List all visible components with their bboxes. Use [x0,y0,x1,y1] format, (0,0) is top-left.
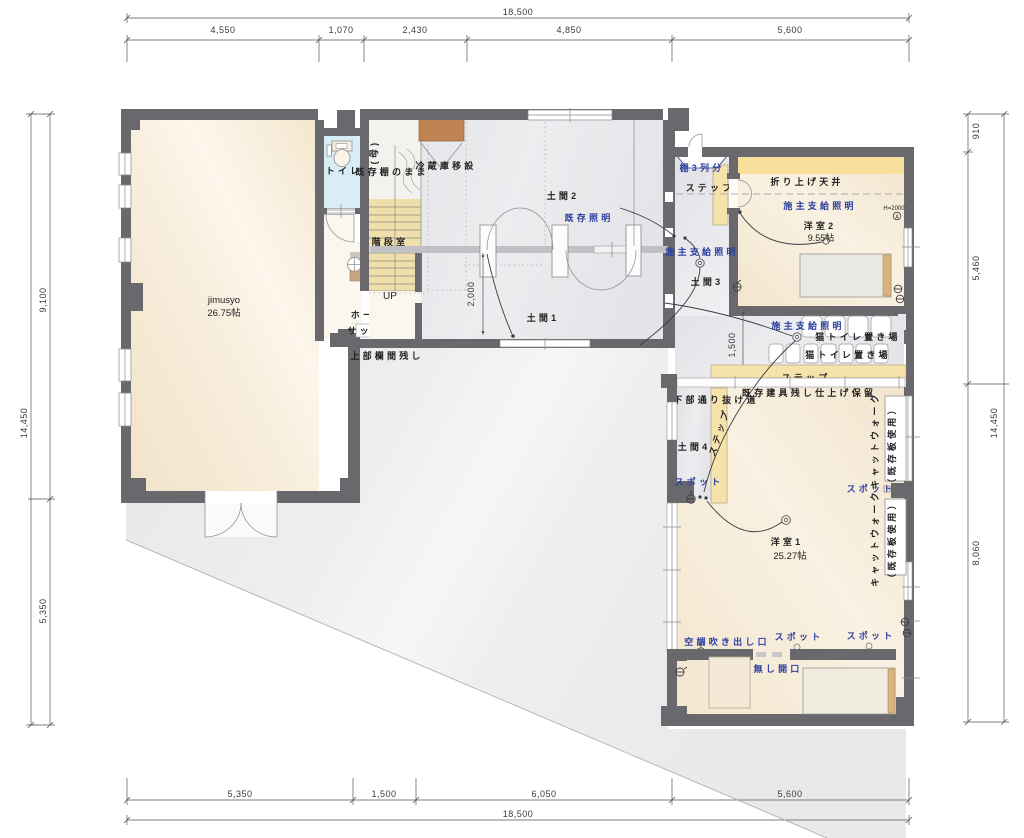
svg-text:UP: UP [383,291,397,302]
svg-text:土間4: 土間4 [678,441,711,452]
svg-text:(母): (母) [369,140,379,165]
svg-text:スポット: スポット [775,631,824,642]
svg-text:施主支給照明: 施主支給照明 [783,200,856,211]
svg-text:猫トイレ置き場: 猫トイレ置き場 [805,349,890,360]
svg-text:1,070: 1,070 [328,25,353,35]
svg-text:2,430: 2,430 [402,25,427,35]
svg-text:8,060: 8,060 [971,540,981,565]
svg-text:洋室1: 洋室1 [771,536,804,547]
svg-text:5,350: 5,350 [38,598,48,623]
svg-text:スポット: スポット [675,476,724,487]
svg-text:25.27帖: 25.27帖 [773,550,807,562]
svg-text:空調吹き出し口: 空調吹き出し口 [684,636,769,647]
svg-text:施主支給照明: 施主支給照明 [771,320,844,331]
svg-text:9,100: 9,100 [38,287,48,312]
svg-text:土間2: 土間2 [547,190,580,201]
svg-text:4,850: 4,850 [556,25,581,35]
svg-text:jimusyo: jimusyo [207,295,240,306]
svg-text:洋室2: 洋室2 [804,220,837,231]
svg-text:H=2000: H=2000 [883,206,905,212]
svg-text:1,500: 1,500 [727,332,737,357]
svg-text:5,460: 5,460 [971,255,981,280]
svg-text:折り上げ天井: 折り上げ天井 [770,176,843,187]
svg-text:5,600: 5,600 [777,789,802,799]
svg-text:棚3列分: 棚3列分 [680,162,725,173]
svg-text:土間1: 土間1 [527,312,560,323]
svg-text:910: 910 [971,123,981,140]
svg-text:1,500: 1,500 [371,789,396,799]
svg-text:14,450: 14,450 [19,408,29,439]
svg-text:スポット: スポット [847,630,896,641]
svg-text:（既存板使用）: （既存板使用） [886,497,897,582]
svg-text:26.75帖: 26.75帖 [207,307,241,319]
svg-text:9.55帖: 9.55帖 [808,232,835,243]
svg-text:キャットウォーク: キャットウォーク [870,391,880,489]
svg-text:14,450: 14,450 [989,408,999,439]
svg-text:施主支給照明: 施主支給照明 [665,246,738,257]
svg-text:4,550: 4,550 [210,25,235,35]
svg-text:（既存板使用）: （既存板使用） [886,402,897,487]
svg-text:階段室: 階段室 [372,236,409,247]
svg-text:5,350: 5,350 [227,789,252,799]
svg-text:キャットウォーク: キャットウォーク [870,489,880,587]
svg-text:上部欄間残し: 上部欄間残し [350,350,423,361]
svg-text:猫トイレ置き場: 猫トイレ置き場 [815,331,900,342]
svg-text:18,500: 18,500 [503,809,534,819]
svg-text:6,050: 6,050 [531,789,556,799]
svg-text:18,500: 18,500 [503,7,534,17]
svg-text:冷蔵庫移設: 冷蔵庫移設 [415,160,476,171]
svg-text:既存建具残し仕上げ保留: 既存建具残し仕上げ保留 [742,387,876,398]
svg-text:5,600: 5,600 [777,25,802,35]
svg-text:ステップ: ステップ [686,182,735,193]
svg-text:2,000: 2,000 [466,281,476,306]
svg-text:既存照明: 既存照明 [565,212,614,223]
